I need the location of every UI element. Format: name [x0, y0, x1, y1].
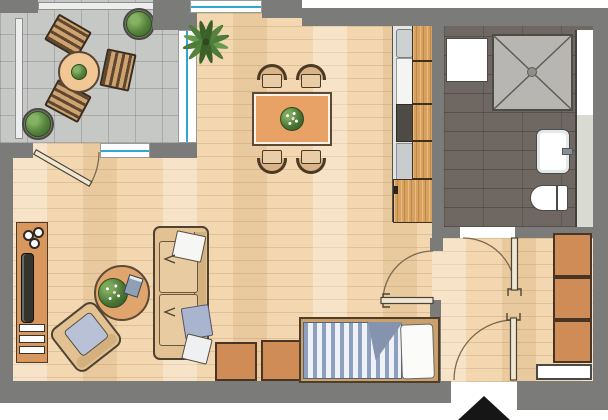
balcony-door [34, 150, 99, 186]
shower-detail [494, 36, 571, 109]
bathroom-door [463, 238, 521, 296]
symbol-overlay [0, 0, 608, 420]
sofa-crease-arrows [165, 255, 175, 316]
palm-plant [182, 19, 230, 65]
living-to-hall-door [381, 251, 433, 307]
entrance-door [454, 313, 520, 380]
floor-plan [0, 0, 608, 420]
